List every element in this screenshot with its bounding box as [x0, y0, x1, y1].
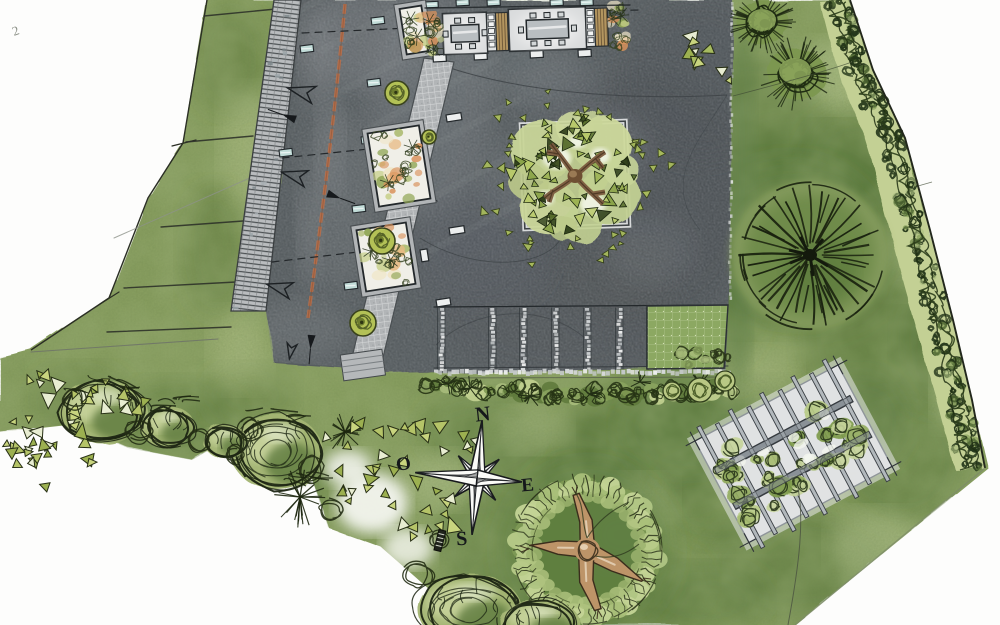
svg-text:O: O [395, 453, 413, 476]
svg-text:E: E [520, 474, 534, 496]
svg-text:N: N [474, 401, 492, 426]
svg-text:S: S [455, 528, 468, 551]
